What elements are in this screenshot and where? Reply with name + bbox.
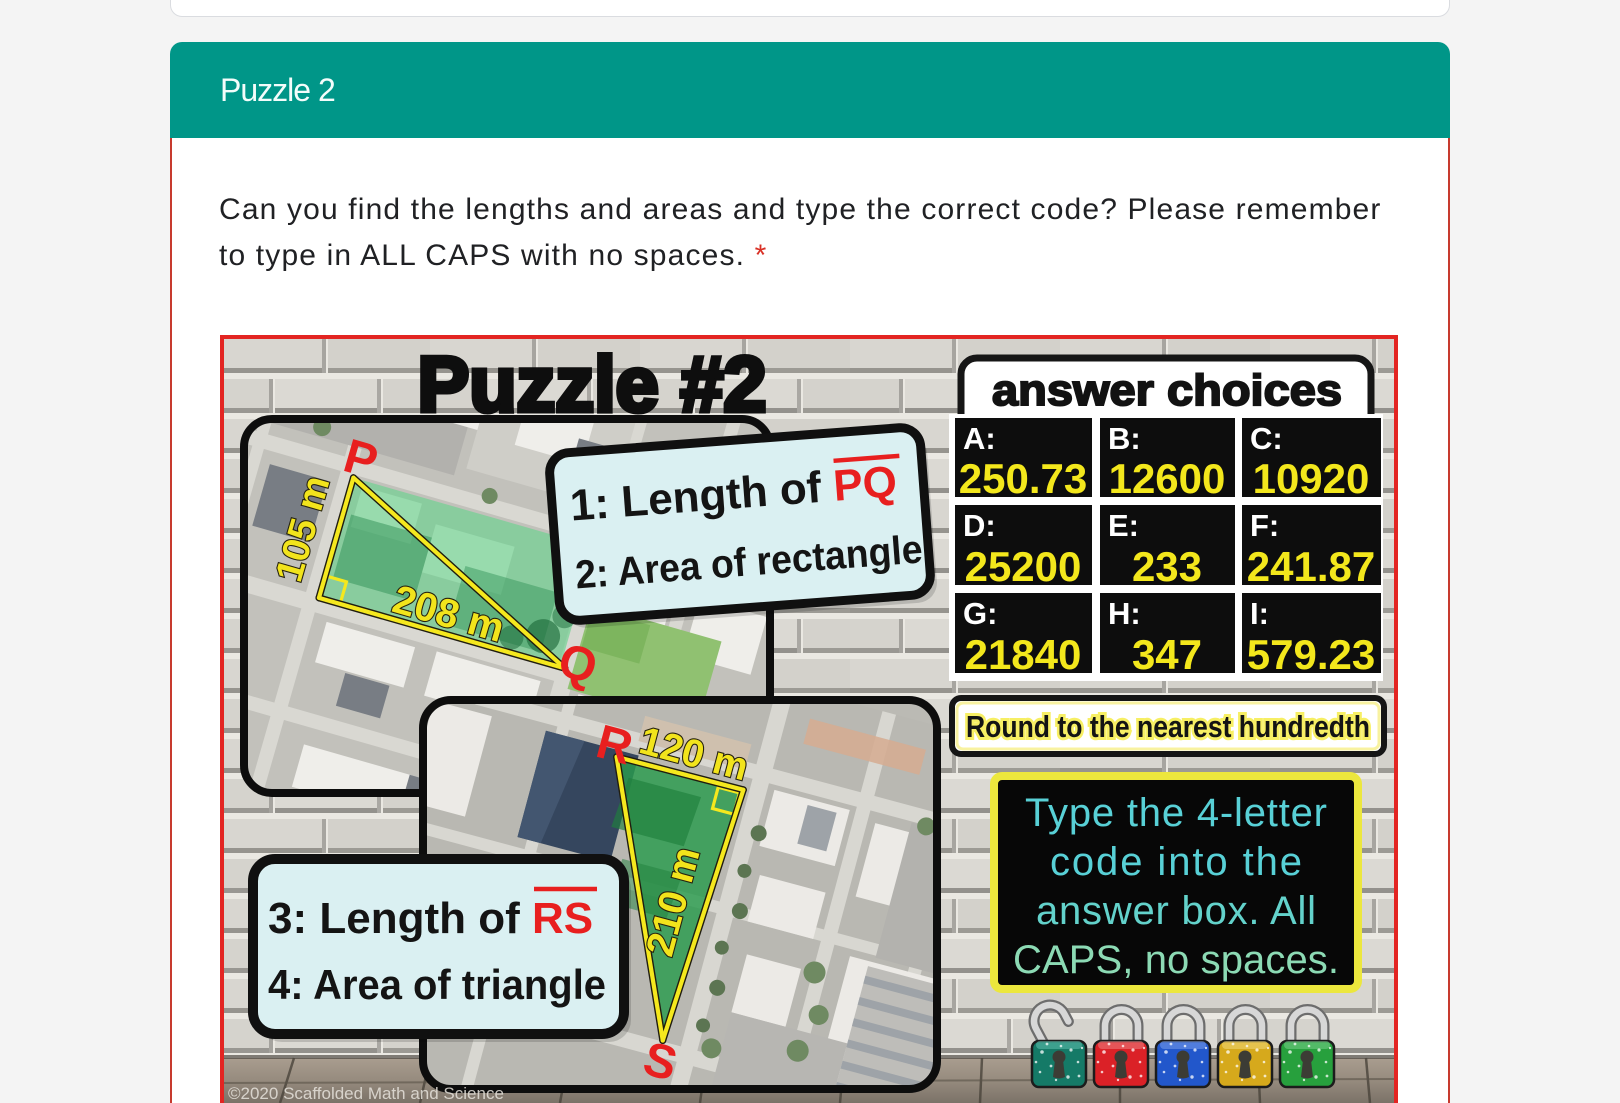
svg-text:H:: H: [1108, 596, 1141, 631]
svg-text:Round to the nearest hundredth: Round to the nearest hundredth [966, 709, 1370, 744]
svg-text:10920: 10920 [1253, 455, 1370, 502]
svg-text:C:: C: [1250, 421, 1283, 456]
svg-text:E:: E: [1108, 508, 1139, 543]
svg-text:3: Length of RS: 3: Length of RS [268, 894, 593, 943]
svg-text:D:: D: [963, 508, 996, 543]
svg-text:answer choices: answer choices [992, 366, 1342, 415]
svg-text:A:: A: [963, 421, 996, 456]
svg-text:579.23: 579.23 [1247, 631, 1375, 678]
svg-text:G:: G: [963, 596, 997, 631]
svg-text:4: Area of triangle: 4: Area of triangle [268, 961, 606, 1008]
svg-text:12600: 12600 [1109, 455, 1226, 502]
svg-text:©2020 Scaffolded Math and Scie: ©2020 Scaffolded Math and Science [228, 1084, 504, 1103]
svg-text:F:: F: [1250, 508, 1279, 543]
svg-text:25200: 25200 [965, 543, 1082, 590]
svg-text:I:: I: [1250, 596, 1269, 631]
svg-text:250.73: 250.73 [959, 455, 1087, 502]
svg-text:233: 233 [1132, 543, 1202, 590]
svg-text:CAPS, no spaces.: CAPS, no spaces. [1013, 938, 1339, 982]
svg-text:241.87: 241.87 [1247, 543, 1375, 590]
svg-text:21840: 21840 [965, 631, 1082, 678]
svg-text:answer box. All: answer box. All [1036, 889, 1316, 933]
svg-text:Type the 4-letter: Type the 4-letter [1025, 791, 1327, 835]
svg-text:Puzzle #2: Puzzle #2 [418, 340, 767, 428]
svg-text:B:: B: [1108, 421, 1141, 456]
svg-text:347: 347 [1132, 631, 1202, 678]
svg-text:code into the: code into the [1050, 840, 1302, 884]
